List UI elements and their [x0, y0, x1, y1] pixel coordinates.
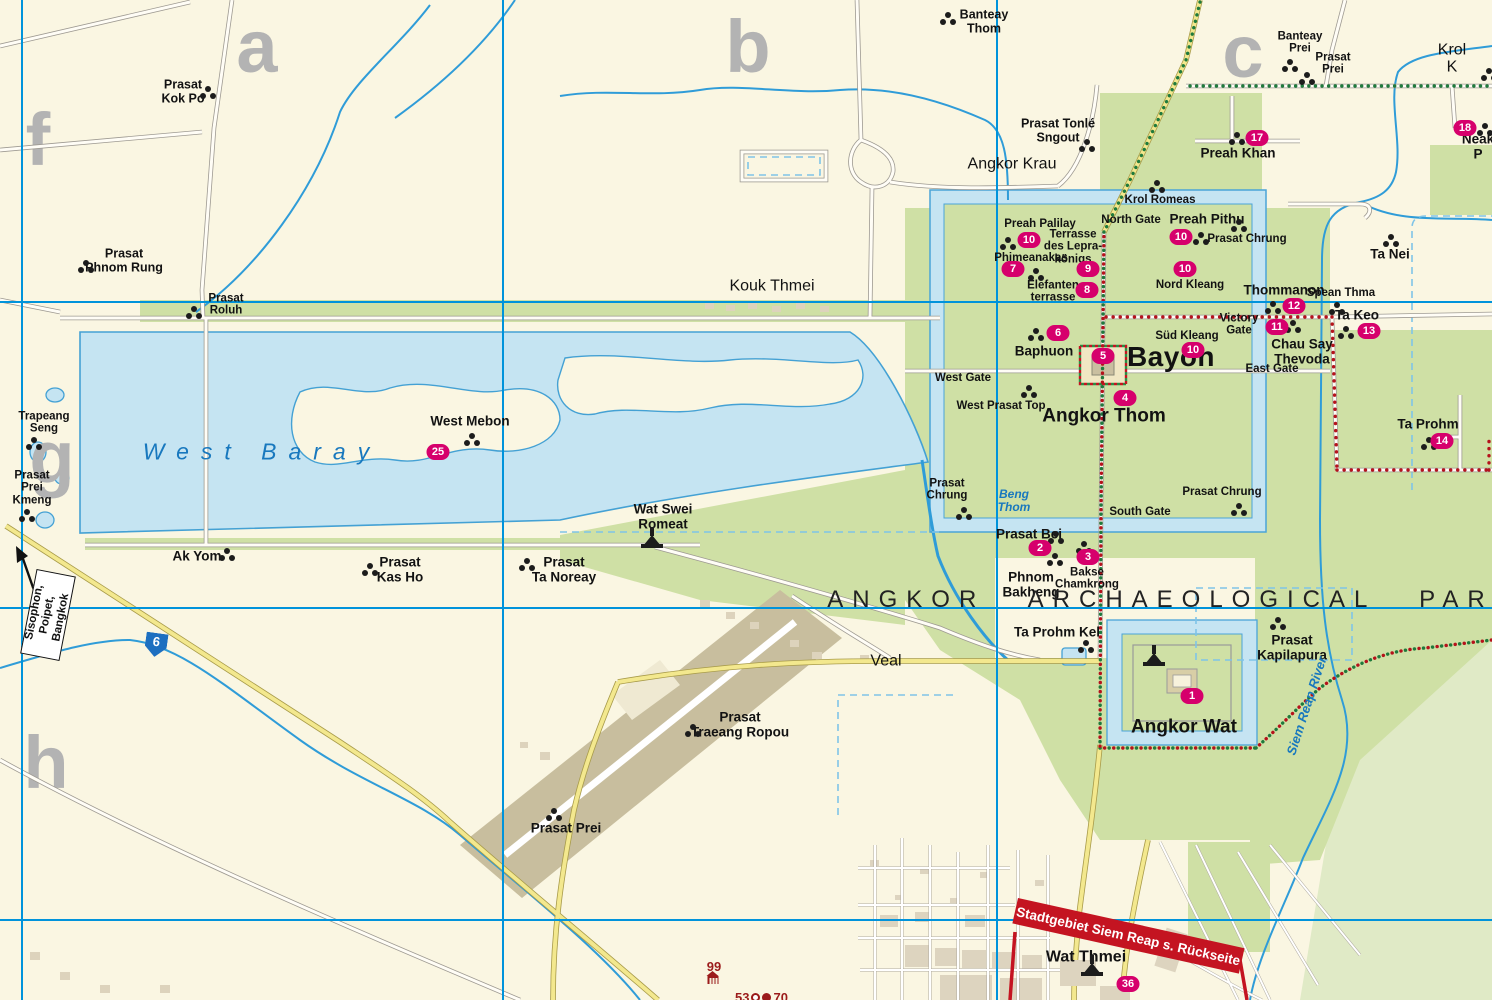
- west-mebon-label: West Mebon: [430, 415, 509, 430]
- thommanon-temple-icon: [1270, 301, 1276, 307]
- prasat-kapilapura-temple-icon: [1275, 617, 1281, 623]
- map-labels-layer: Prasat Kok PoPrasat Phnom RungPrasat Rol…: [0, 0, 1492, 1000]
- west-baray-label: West Baray: [143, 440, 381, 465]
- beng-thom-label: Beng Thom: [998, 488, 1031, 514]
- ta-prohm-badge: 14: [1431, 433, 1454, 449]
- spean-thma-label: Spean Thma: [1307, 287, 1375, 299]
- south-gate-label: South Gate: [1109, 506, 1170, 518]
- victory-gate-label: Victory Gate: [1220, 313, 1259, 338]
- preah-khan-temple-icon: [1234, 132, 1240, 138]
- angkor-map: abcfgh: [0, 0, 1492, 1000]
- wat-swei-romeat-label: Wat Swei Romeat: [634, 502, 693, 531]
- krol-romeas-temple-icon: [1154, 180, 1160, 186]
- poi-open-dot-icon: [751, 993, 760, 1000]
- sued-kleang-badge: 10: [1182, 342, 1205, 358]
- phnom-bakheng-badge: 2: [1029, 540, 1052, 556]
- bakse-chamkrong-badge: 3: [1077, 549, 1100, 565]
- ta-keo-temple-icon: [1343, 326, 1349, 332]
- angkor-thom-badge: 4: [1114, 390, 1137, 406]
- prasat-bei-temple-icon: [1053, 531, 1059, 537]
- prasat-roluh-temple-icon: [191, 306, 197, 312]
- spean-thma-temple-icon: [1334, 302, 1340, 308]
- elefanten-terrasse-badge: 8: [1076, 282, 1099, 298]
- west-mebon-temple-icon: [469, 433, 475, 439]
- siem-reap-river-label: Siem Reap River: [1284, 655, 1329, 757]
- angkor-thom-label: Angkor Thom: [1042, 407, 1166, 428]
- hotel-99-icon: [708, 976, 719, 984]
- chau-say-thevoda-badge: 11: [1266, 319, 1289, 335]
- banteay-thom-temple-icon: [945, 12, 951, 18]
- phimeanakas-temple-icon: [1033, 268, 1039, 274]
- west-prasat-top-label: West Prasat Top: [956, 400, 1045, 412]
- chau-say-thevoda-temple-icon: [1290, 320, 1296, 326]
- phnom-bakheng-temple-icon: [1052, 553, 1058, 559]
- prasat-phnom-rung-label: Prasat Phnom Rung: [85, 248, 163, 275]
- preah-palilay-badge: 10: [1018, 232, 1041, 248]
- phimeanakas-badge: 7: [1002, 261, 1025, 277]
- baphuon-temple-icon: [1033, 328, 1039, 334]
- prasat-ta-noreay-temple-icon: [524, 558, 530, 564]
- prasat-prei-s-label: Prasat Prei: [531, 822, 602, 837]
- ta-prohm-kel-temple-icon: [1083, 640, 1089, 646]
- prasat-prei-kmeng-temple-icon: [24, 509, 30, 515]
- east-gate-label: East Gate: [1245, 363, 1298, 375]
- elefanten-terrasse-label: Elefanten terrasse: [1027, 280, 1079, 305]
- prasat-prei-ne-temple-icon: [1304, 72, 1310, 78]
- prasat-bei-label: Prasat Bei: [996, 528, 1062, 543]
- prasat-phnom-rung-temple-icon: [83, 260, 89, 266]
- north-gate-label: North Gate: [1101, 214, 1160, 226]
- ta-prohm-kel-label: Ta Prohm Kel: [1014, 626, 1100, 641]
- preah-palilay-temple-icon: [1005, 237, 1011, 243]
- west-mebon-badge: 25: [427, 444, 450, 460]
- prasat-prei-ne-label: Prasat Prei: [1315, 52, 1350, 77]
- banteay-thom-label: Banteay Thom: [960, 9, 1009, 36]
- west-prasat-top-temple-icon: [1026, 385, 1032, 391]
- ta-keo-badge: 13: [1358, 323, 1381, 339]
- trapeang-seng-temple-icon: [31, 437, 37, 443]
- krol-ko-temple-icon: [1486, 68, 1492, 74]
- prasat-roluh-label: Prasat Roluh: [208, 293, 243, 318]
- angkor-wat-pagoda-icon: [1145, 653, 1163, 664]
- bakse-chamkrong-temple-icon: [1081, 541, 1087, 547]
- prasat-traeang-ropou-label: Prasat Traeang Ropou: [691, 710, 789, 739]
- terrasse-lepra-badge: 9: [1077, 261, 1100, 277]
- poi-53-label: 53: [735, 990, 749, 1000]
- prasat-chrung-se-label: Prasat Chrung: [1182, 486, 1261, 498]
- prasat-kas-ho-temple-icon: [367, 563, 373, 569]
- angkor-krau-label: Angkor Krau: [968, 155, 1057, 172]
- poi-filled-dot-icon: [762, 993, 771, 1000]
- park-title-label: ANGKOR ARCHAEOLOGICAL PARK: [827, 587, 1492, 613]
- ta-nei-temple-icon: [1388, 234, 1394, 240]
- bayon-badge: 5: [1092, 348, 1115, 364]
- ak-yom-temple-icon: [224, 548, 230, 554]
- neak-pean-badge: 18: [1454, 120, 1477, 136]
- prasat-kas-ho-label: Prasat Kas Ho: [377, 555, 424, 584]
- ta-prohm-label: Ta Prohm: [1397, 418, 1458, 433]
- poi-70-label: 70: [773, 990, 787, 1000]
- preah-pithu-temple-icon: [1198, 232, 1204, 238]
- krol-romeas-label: Krol Romeas: [1125, 194, 1196, 206]
- prasat-chrung-sw-label: Prasat Chrung: [927, 478, 968, 503]
- ak-yom-label: Ak Yom: [172, 550, 221, 565]
- prasat-chrung-se-temple-icon: [1236, 503, 1242, 509]
- prasat-chrung-ne-label: Prasat Chrung: [1207, 233, 1286, 245]
- prasat-kok-po-label: Prasat Kok Po: [161, 79, 204, 106]
- preah-khan-label: Preah Khan: [1200, 147, 1275, 162]
- trapeang-seng-label: Trapeang Seng: [18, 411, 69, 436]
- kouk-thmei-label: Kouk Thmei: [729, 277, 814, 294]
- preah-khan-badge: 17: [1246, 130, 1269, 146]
- prasat-prei-s-temple-icon: [551, 808, 557, 814]
- baphuon-badge: 6: [1047, 325, 1070, 341]
- prasat-chrung-ne-temple-icon: [1236, 219, 1242, 225]
- prasat-prei-kmeng-label: Prasat Prei Kmeng: [13, 469, 52, 506]
- angkor-wat-label: Angkor Wat: [1131, 718, 1237, 739]
- veal-label: Veal: [870, 652, 901, 669]
- wat-thmei-pagoda-icon: [1083, 963, 1101, 974]
- thommanon-badge: 12: [1283, 298, 1306, 314]
- west-gate-label: West Gate: [935, 372, 991, 384]
- krol-ko-label: Krol K: [1432, 42, 1472, 77]
- preah-pithu-badge: 10: [1170, 229, 1193, 245]
- baphuon-label: Baphuon: [1015, 345, 1074, 360]
- poi-53-70: 53 70: [735, 990, 788, 1000]
- ta-nei-label: Ta Nei: [1370, 248, 1410, 263]
- neak-pean-temple-icon: [1482, 123, 1488, 129]
- ta-keo-label: Ta Keo: [1335, 309, 1379, 324]
- neak-pean-label: Neak P: [1462, 132, 1492, 161]
- angkor-wat-badge: 1: [1181, 688, 1204, 704]
- prasat-ta-noreay-label: Prasat Ta Noreay: [532, 555, 596, 584]
- nord-kleang-badge: 10: [1174, 261, 1197, 277]
- banteay-prei-temple-icon: [1287, 59, 1293, 65]
- prasat-chrung-sw-temple-icon: [961, 507, 967, 513]
- prasat-kok-po-temple-icon: [205, 86, 211, 92]
- prasat-tonle-sngout-temple-icon: [1084, 139, 1090, 145]
- wat-swei-romeat-pagoda-icon: [643, 535, 661, 546]
- preah-pithu-label: Preah Pithu: [1169, 213, 1244, 228]
- nord-kleang-label: Nord Kleang: [1156, 279, 1224, 291]
- wat-thmei-badge: 36: [1117, 976, 1140, 992]
- prasat-traeang-ropou-temple-icon: [690, 724, 696, 730]
